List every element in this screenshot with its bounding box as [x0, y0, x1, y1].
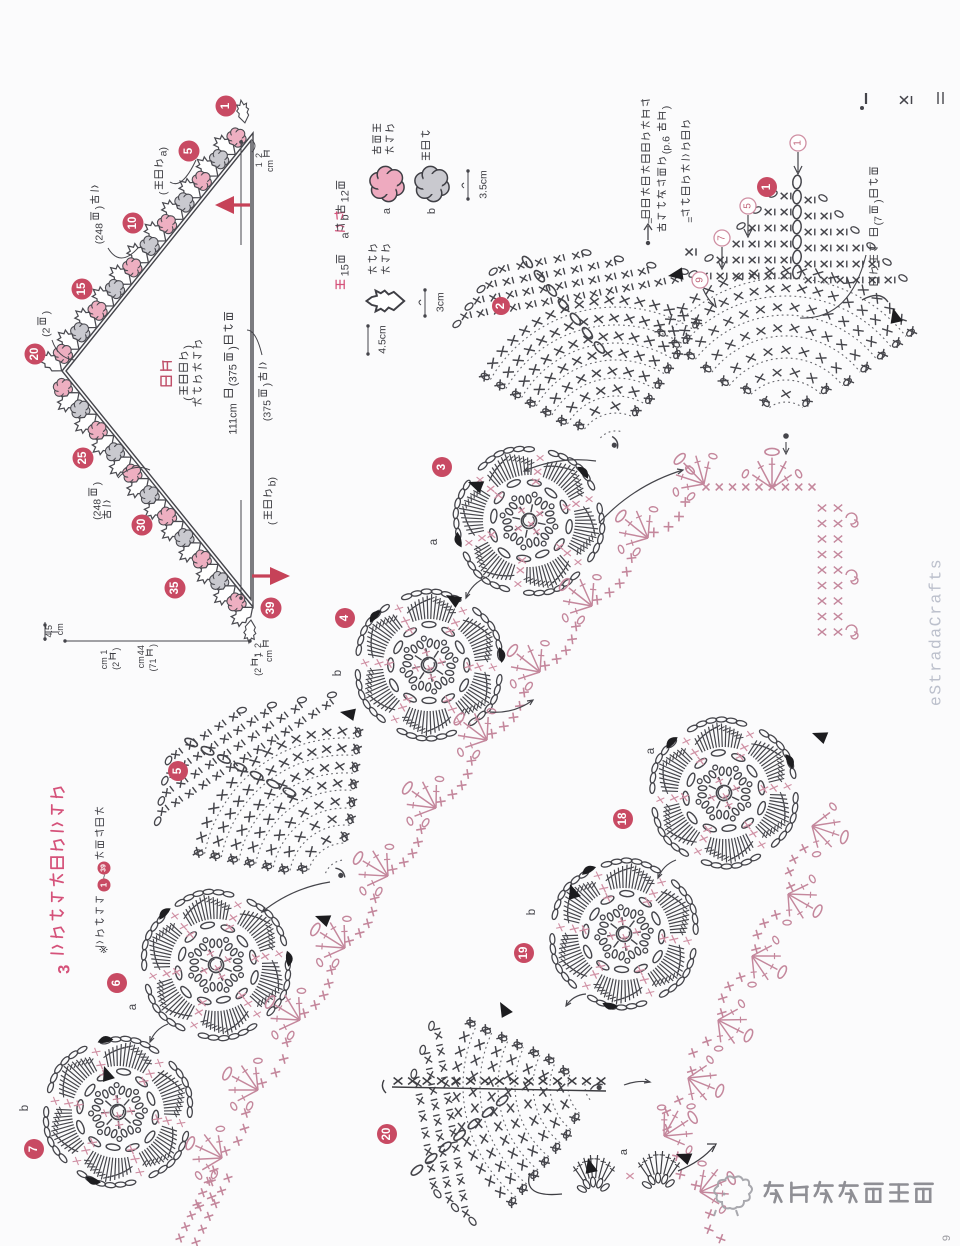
svg-text:(248: (248	[94, 223, 106, 244]
svg-text:=: =	[685, 217, 697, 223]
svg-text:): )	[661, 106, 673, 110]
svg-text:(7: (7	[873, 216, 885, 225]
svg-text:3cm: 3cm	[435, 292, 447, 312]
svg-text:eStradaCrafts: eStradaCrafts	[927, 558, 946, 706]
svg-text:20: 20	[29, 348, 41, 361]
svg-text:): )	[148, 644, 158, 647]
svg-text:4.5: 4.5	[44, 625, 54, 638]
svg-text:1: 1	[220, 102, 232, 109]
svg-text:30: 30	[136, 519, 148, 532]
svg-text:25: 25	[77, 451, 89, 464]
svg-text:cm: cm	[264, 650, 274, 662]
svg-text:9: 9	[695, 277, 706, 283]
svg-text:5: 5	[172, 767, 184, 774]
svg-text:(: (	[183, 397, 195, 401]
svg-text:a): a)	[158, 147, 170, 156]
svg-text:(71: (71	[148, 658, 158, 671]
svg-text:): )	[111, 648, 121, 651]
svg-text:(: (	[158, 191, 170, 195]
svg-text:9: 9	[941, 1235, 953, 1241]
svg-text:(: (	[267, 521, 279, 525]
svg-text:b): b)	[267, 477, 279, 486]
svg-text:(2: (2	[253, 668, 263, 676]
svg-text:a: a	[381, 207, 393, 214]
svg-text:b: b	[19, 1105, 31, 1111]
svg-text:b: b	[526, 909, 538, 915]
svg-text:7: 7	[28, 1146, 40, 1152]
svg-text:15: 15	[340, 264, 352, 276]
svg-text:7: 7	[717, 235, 728, 241]
svg-text:(2: (2	[111, 662, 121, 670]
svg-text:4: 4	[339, 614, 351, 621]
svg-text:(248: (248	[92, 499, 104, 520]
svg-text:): )	[94, 206, 106, 210]
svg-text:cm: cm	[265, 160, 275, 172]
svg-text:5: 5	[183, 147, 195, 154]
svg-text:20: 20	[381, 1128, 393, 1141]
svg-text:18: 18	[617, 812, 629, 825]
svg-text:1: 1	[99, 650, 109, 655]
svg-text:6: 6	[111, 980, 123, 986]
svg-text:a: a	[645, 747, 657, 754]
svg-text:2: 2	[495, 303, 507, 309]
svg-text:cm: cm	[99, 657, 109, 669]
svg-text:2: 2	[254, 153, 264, 158]
svg-text:a: a	[340, 232, 352, 239]
svg-text:): )	[228, 346, 240, 350]
svg-text:19: 19	[518, 947, 530, 960]
svg-text:): )	[873, 199, 885, 203]
svg-text:b: b	[426, 208, 438, 214]
svg-text:12: 12	[340, 190, 352, 202]
svg-text:b: b	[332, 670, 344, 676]
svg-text:): )	[41, 311, 53, 315]
svg-text:1: 1	[793, 140, 804, 146]
svg-text:15: 15	[76, 282, 88, 295]
svg-text:=: =	[645, 218, 657, 224]
svg-text:39: 39	[101, 864, 108, 872]
svg-text:1: 1	[254, 162, 264, 167]
svg-text:39: 39	[265, 602, 277, 615]
svg-text:a: a	[428, 538, 440, 545]
svg-text:4.5cm: 4.5cm	[377, 325, 389, 354]
svg-text:a: a	[618, 1148, 630, 1155]
svg-text:5: 5	[743, 203, 754, 209]
svg-text:cm: cm	[136, 656, 146, 668]
svg-text:3: 3	[56, 965, 74, 974]
svg-text:): )	[253, 654, 263, 657]
svg-text:10: 10	[127, 217, 139, 230]
svg-text:1: 1	[100, 882, 109, 887]
svg-text:(375: (375	[262, 400, 274, 421]
svg-text:(2: (2	[41, 327, 53, 336]
svg-text:1: 1	[761, 183, 773, 190]
svg-text:3.5cm: 3.5cm	[478, 170, 490, 199]
svg-text:a: a	[127, 1003, 139, 1010]
svg-text:): )	[92, 482, 104, 486]
svg-text:44: 44	[136, 645, 146, 655]
svg-text:3: 3	[436, 464, 448, 470]
svg-text:): )	[262, 383, 274, 387]
svg-text:111cm: 111cm	[228, 403, 240, 434]
svg-text:cm: cm	[55, 623, 65, 635]
svg-text:35: 35	[169, 581, 181, 594]
svg-text:(375: (375	[228, 364, 240, 386]
svg-text:2: 2	[253, 643, 263, 648]
svg-text:b: b	[340, 214, 352, 220]
svg-text:(p.6: (p.6	[661, 136, 673, 154]
